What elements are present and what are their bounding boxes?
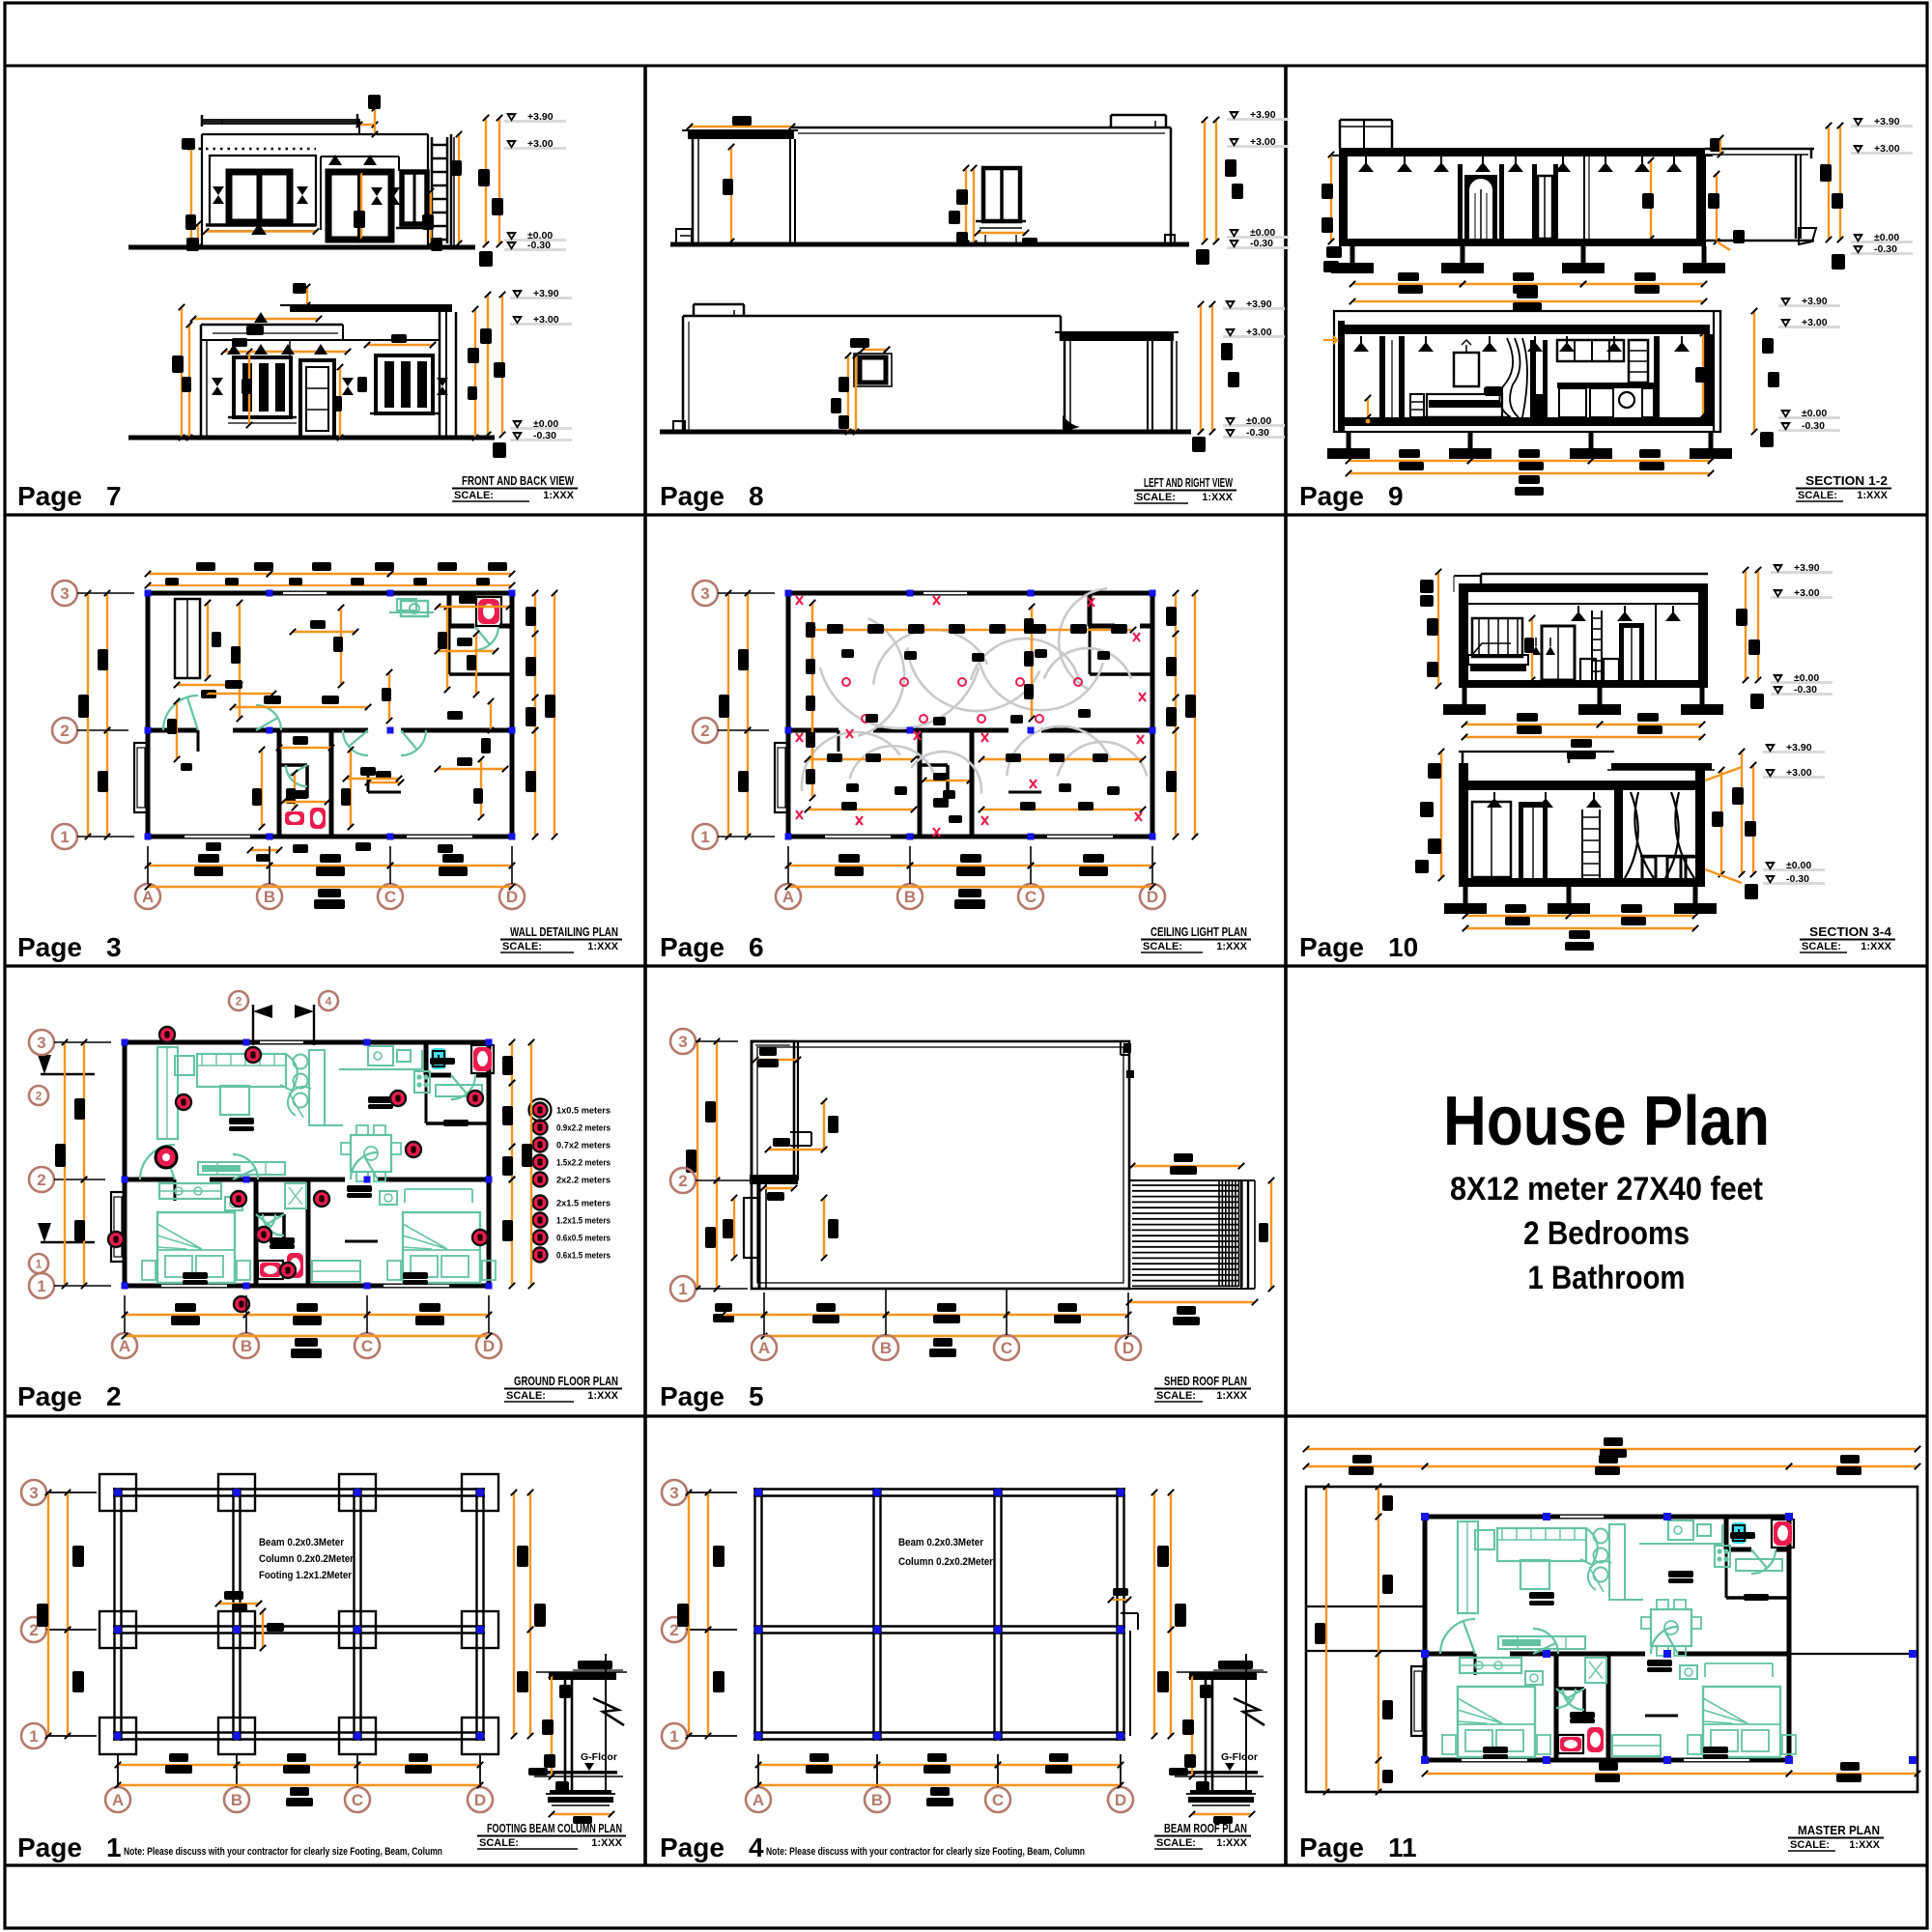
svg-text:9: 9 [1388,481,1404,511]
svg-text:±0.00: ±0.00 [1794,672,1819,684]
svg-text:Page: Page [660,1833,724,1862]
svg-text:SCALE:: SCALE: [1156,1837,1196,1849]
svg-text:-0.30: -0.30 [1802,420,1825,432]
svg-text:-0.30: -0.30 [533,430,556,441]
svg-text:B: B [871,1791,883,1809]
svg-text:±0.00: ±0.00 [533,418,558,430]
svg-text:SCALE:: SCALE: [506,1390,546,1402]
svg-text:2: 2 [106,1381,122,1411]
svg-text:-0.30: -0.30 [1794,684,1817,696]
svg-text:SCALE:: SCALE: [1790,1839,1830,1851]
svg-text:-0.30: -0.30 [527,240,551,251]
svg-text:SECTION 1-2: SECTION 1-2 [1805,474,1888,488]
svg-text:3: 3 [700,584,709,603]
svg-text:0.9x2.2 meters: 0.9x2.2 meters [556,1123,611,1134]
svg-text:A: A [758,1339,770,1357]
svg-text:House Plan: House Plan [1443,1083,1770,1160]
svg-text:D: D [1147,888,1158,906]
svg-text:2: 2 [678,1172,687,1190]
svg-text:CEILING LIGHT PLAN: CEILING LIGHT PLAN [1151,925,1247,939]
svg-text:4: 4 [326,994,332,1008]
svg-text:+3.90: +3.90 [1874,116,1900,128]
svg-text:+3.00: +3.00 [1250,136,1276,148]
svg-text:2: 2 [36,1089,43,1102]
svg-text:2: 2 [236,994,242,1008]
svg-text:Beam 0.2x0.3Meter: Beam 0.2x0.3Meter [259,1537,345,1548]
svg-text:1.2x1.5 meters: 1.2x1.5 meters [556,1216,611,1227]
svg-text:1.5x2.2 meters: 1.5x2.2 meters [556,1158,611,1169]
svg-text:3: 3 [29,1484,38,1502]
svg-text:0.7x2 meters: 0.7x2 meters [556,1141,611,1151]
svg-text:C: C [352,1791,363,1809]
svg-text:+3.90: +3.90 [1794,562,1820,574]
svg-text:1:XXX: 1:XXX [1861,941,1891,952]
svg-text:WALL DETAILING PLAN: WALL DETAILING PLAN [510,925,618,939]
svg-text:A: A [112,1791,124,1809]
svg-text:8: 8 [749,481,764,511]
svg-text:C: C [1025,888,1037,906]
svg-text:1: 1 [60,828,69,846]
svg-text:MASTER PLAN: MASTER PLAN [1798,1824,1880,1837]
svg-text:D: D [1115,1791,1126,1809]
svg-text:+3.00: +3.00 [1786,767,1812,779]
svg-text:+3.90: +3.90 [1802,296,1828,307]
svg-text:Page: Page [17,1833,82,1862]
svg-text:SHED ROOF PLAN: SHED ROOF PLAN [1164,1375,1247,1388]
svg-text:Page: Page [17,932,82,962]
svg-text:8X12 meter 27X40 feet: 8X12 meter 27X40 feet [1450,1171,1763,1207]
svg-text:BEAM ROOF PLAN: BEAM ROOF PLAN [1164,1822,1247,1835]
svg-text:+3.00: +3.00 [533,314,559,326]
svg-text:SCALE:: SCALE: [1156,1390,1196,1402]
svg-text:SCALE:: SCALE: [1798,490,1837,501]
svg-text:±0.00: ±0.00 [1802,408,1827,419]
svg-text:1:XXX: 1:XXX [587,941,618,952]
svg-text:C: C [384,888,396,906]
svg-text:G-Floor: G-Floor [581,1751,617,1763]
svg-text:7: 7 [106,481,122,511]
svg-text:1: 1 [37,1277,45,1295]
svg-text:Page: Page [1299,1833,1364,1862]
svg-text:B: B [264,888,275,906]
svg-text:G-Floor: G-Floor [1221,1751,1258,1763]
svg-text:+3.00: +3.00 [527,138,554,150]
svg-text:Note: Please discuss with your: Note: Please discuss with your contracto… [766,1846,1085,1858]
svg-text:Footing 1.2x1.2Meter: Footing 1.2x1.2Meter [259,1570,353,1581]
svg-text:Page: Page [17,1381,82,1411]
svg-text:FRONT AND BACK VIEW: FRONT AND BACK VIEW [462,474,574,488]
svg-text:±0.00: ±0.00 [1246,415,1271,427]
svg-text:1:XXX: 1:XXX [591,1837,622,1849]
svg-text:-0.30: -0.30 [1874,243,1897,255]
svg-text:2: 2 [37,1171,45,1189]
svg-text:+3.90: +3.90 [1246,298,1272,310]
svg-text:1:XXX: 1:XXX [1216,941,1247,952]
svg-text:2x1.5 meters: 2x1.5 meters [556,1199,611,1209]
svg-text:10: 10 [1388,932,1418,962]
svg-text:A: A [782,888,794,906]
svg-text:1: 1 [106,1833,122,1862]
svg-text:D: D [1122,1339,1134,1357]
svg-text:C: C [361,1337,373,1355]
svg-text:±0.00: ±0.00 [1786,860,1811,871]
svg-text:+3.00: +3.00 [1802,317,1828,328]
svg-text:SCALE:: SCALE: [479,1837,519,1849]
svg-text:+3.90: +3.90 [1250,109,1276,121]
svg-text:-0.30: -0.30 [1786,873,1809,885]
svg-text:2 Bedrooms: 2 Bedrooms [1523,1215,1690,1252]
svg-text:1:XXX: 1:XXX [1849,1839,1880,1851]
svg-text:C: C [1001,1339,1012,1357]
svg-text:SCALE:: SCALE: [1143,941,1182,952]
svg-text:B: B [904,888,916,906]
svg-text:3: 3 [37,1034,45,1052]
svg-text:Page: Page [660,932,724,962]
svg-text:A: A [119,1337,130,1355]
svg-text:Page: Page [1299,481,1364,511]
svg-text:5: 5 [749,1381,764,1411]
svg-text:Note: Please discuss with your: Note: Please discuss with your contracto… [124,1846,442,1858]
svg-text:Column 0.2x0.2Meter: Column 0.2x0.2Meter [259,1553,355,1565]
svg-text:2: 2 [700,722,709,740]
svg-text:3: 3 [60,584,69,603]
svg-text:Page: Page [17,481,82,511]
svg-text:C: C [992,1791,1004,1809]
svg-text:6: 6 [749,932,764,962]
svg-text:Page: Page [660,481,724,511]
svg-text:Page: Page [1299,932,1364,962]
svg-text:SECTION 3-4: SECTION 3-4 [1809,925,1891,939]
svg-text:GROUND FLOOR PLAN: GROUND FLOOR PLAN [514,1375,618,1388]
svg-text:1x0.5 meters: 1x0.5 meters [556,1106,611,1117]
svg-text:±0.00: ±0.00 [1874,232,1899,243]
svg-text:1:XXX: 1:XXX [543,490,574,501]
svg-text:+3.00: +3.00 [1794,587,1820,599]
svg-text:+3.00: +3.00 [1874,143,1900,155]
svg-text:2x2.2 meters: 2x2.2 meters [556,1176,611,1186]
svg-text:1: 1 [669,1727,678,1746]
svg-text:3: 3 [669,1484,678,1502]
svg-text:D: D [483,1337,495,1355]
svg-text:-0.30: -0.30 [1250,238,1273,249]
svg-text:+3.90: +3.90 [527,111,554,123]
svg-text:SCALE:: SCALE: [1802,941,1841,952]
svg-text:0.6x0.5 meters: 0.6x0.5 meters [556,1234,611,1244]
svg-text:1:XXX: 1:XXX [1857,490,1888,501]
svg-text:D: D [474,1791,486,1809]
svg-text:A: A [142,888,154,906]
svg-text:1:XXX: 1:XXX [1216,1390,1247,1402]
svg-text:11: 11 [1388,1833,1417,1862]
svg-text:1: 1 [36,1257,43,1270]
svg-text:1:XXX: 1:XXX [1202,492,1233,503]
svg-text:SCALE:: SCALE: [1136,492,1176,503]
svg-text:Column 0.2x0.2Meter: Column 0.2x0.2Meter [898,1556,994,1568]
svg-text:Beam 0.2x0.3Meter: Beam 0.2x0.3Meter [898,1537,984,1548]
svg-text:+3.90: +3.90 [1786,742,1812,753]
svg-text:1: 1 [700,828,709,846]
svg-text:1:XXX: 1:XXX [587,1390,618,1402]
svg-text:B: B [241,1337,252,1355]
svg-text:1 Bathroom: 1 Bathroom [1528,1260,1686,1296]
svg-text:A: A [753,1791,764,1809]
svg-text:1: 1 [678,1280,687,1298]
svg-text:SCALE:: SCALE: [454,490,494,501]
svg-text:3: 3 [678,1033,687,1051]
svg-text:-0.30: -0.30 [1246,427,1269,439]
svg-text:D: D [506,888,518,906]
svg-text:1: 1 [29,1727,38,1746]
svg-text:0.6x1.5 meters: 0.6x1.5 meters [556,1251,611,1262]
svg-text:Page: Page [660,1381,724,1411]
svg-text:1:XXX: 1:XXX [1216,1837,1247,1849]
svg-text:3: 3 [106,932,122,962]
svg-text:4: 4 [749,1833,764,1862]
svg-text:2: 2 [60,722,69,740]
svg-text:B: B [880,1339,892,1357]
svg-text:+3.90: +3.90 [533,288,559,299]
svg-text:SCALE:: SCALE: [502,941,542,952]
svg-text:FOOTING BEAM COLUMN PLAN: FOOTING BEAM COLUMN PLAN [487,1822,622,1835]
svg-text:B: B [231,1791,242,1809]
svg-text:+3.00: +3.00 [1246,327,1272,338]
svg-text:LEFT AND RIGHT VIEW: LEFT AND RIGHT VIEW [1144,476,1233,490]
